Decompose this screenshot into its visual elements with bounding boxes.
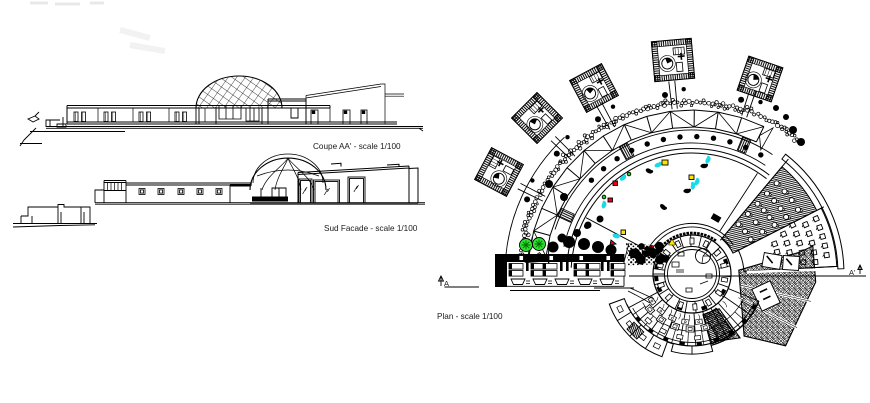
svg-text:Coupe AA' - scale 1/100: Coupe AA' - scale 1/100 xyxy=(313,142,401,151)
svg-text:A: A xyxy=(444,279,449,288)
svg-text:Sud Facade - scale 1/100: Sud Facade - scale 1/100 xyxy=(324,224,418,233)
svg-text:Plan - scale 1/100: Plan - scale 1/100 xyxy=(437,312,503,321)
